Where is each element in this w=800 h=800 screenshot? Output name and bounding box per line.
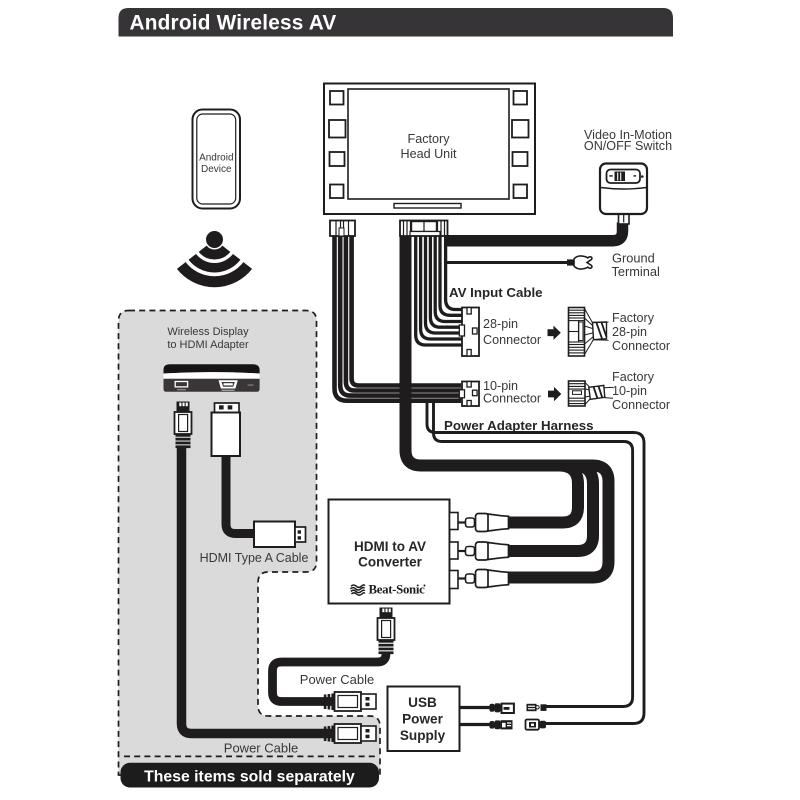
svg-text:Head Unit: Head Unit [400, 147, 457, 161]
svg-text:Android Wireless AV: Android Wireless AV [130, 12, 337, 35]
svg-text:28-pin: 28-pin [483, 317, 518, 331]
svg-text:Device: Device [201, 164, 232, 175]
svg-text:Power Cable: Power Cable [300, 672, 374, 687]
svg-text:HDMI Type A Cable: HDMI Type A Cable [200, 551, 309, 565]
svg-text:ON/OFF Switch: ON/OFF Switch [584, 139, 672, 153]
svg-text:Converter: Converter [358, 555, 423, 570]
svg-text:Terminal: Terminal [612, 264, 660, 279]
svg-text:HDMI to AV: HDMI to AV [354, 539, 426, 554]
svg-text:Power Adapter Harness: Power Adapter Harness [444, 418, 594, 433]
svg-text:10-pin: 10-pin [612, 384, 647, 398]
svg-text:Supply: Supply [400, 728, 446, 743]
svg-text:to HDMI Adapter: to HDMI Adapter [167, 339, 249, 351]
svg-text:Connector: Connector [483, 333, 541, 347]
svg-text:Connector: Connector [483, 392, 541, 406]
svg-text:These items sold separately: These items sold separately [144, 769, 355, 786]
svg-text:Factory: Factory [612, 370, 655, 384]
svg-text:Wireless Display: Wireless Display [167, 326, 249, 338]
svg-text:Power: Power [402, 712, 444, 727]
svg-text:Connector: Connector [612, 398, 670, 412]
svg-text:28-pin: 28-pin [612, 325, 647, 339]
svg-text:USB: USB [408, 695, 437, 710]
svg-text:Android: Android [199, 153, 233, 164]
svg-text:AV Input Cable: AV Input Cable [449, 285, 543, 300]
svg-text:Connector: Connector [612, 339, 670, 353]
svg-text:Power Cable: Power Cable [224, 741, 298, 756]
svg-text:Factory: Factory [408, 132, 451, 146]
svg-text:Beat-Sonic: Beat-Sonic [368, 583, 425, 597]
svg-text:Factory: Factory [612, 311, 655, 325]
